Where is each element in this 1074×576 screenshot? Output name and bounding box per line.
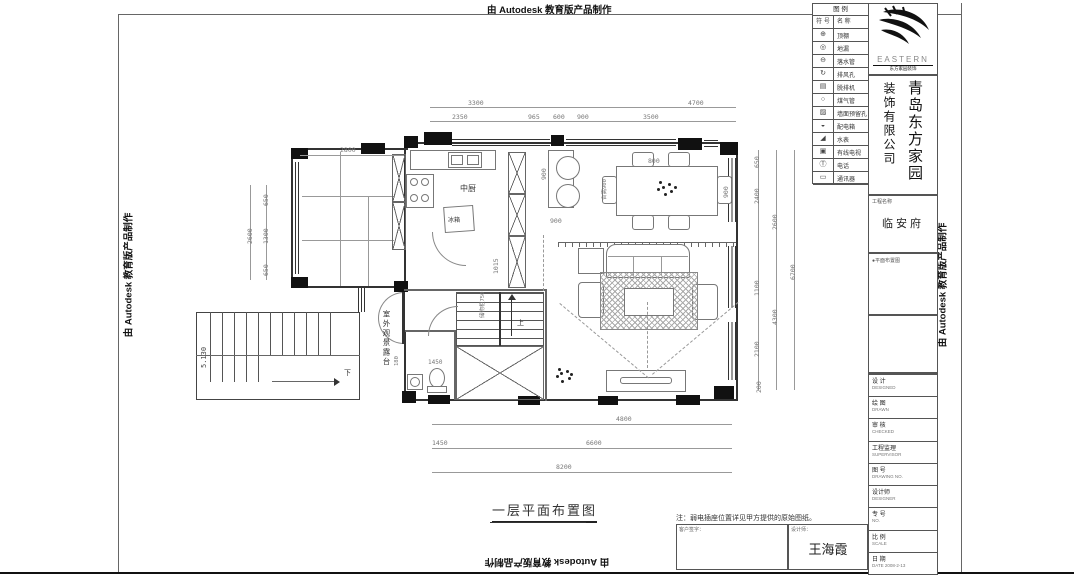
dim-r2400: 2400	[753, 188, 761, 204]
drawing-title-underline	[490, 522, 586, 523]
dim-line	[432, 472, 732, 473]
dim-6700: 6700	[789, 264, 797, 280]
legend-row: ◎地漏	[813, 42, 868, 55]
dim-600: 600	[553, 113, 565, 121]
dining-chair	[668, 152, 690, 167]
titleblock-row-subtext: SUPERVISOR	[872, 452, 934, 457]
tv-centerline	[647, 302, 648, 368]
dim-900v: 900	[722, 186, 730, 198]
legend-row: ↻排风孔	[813, 68, 868, 81]
titleblock-row-subtext: SCALE	[872, 541, 934, 546]
legend-item-name: 有线电视	[834, 148, 868, 157]
column	[720, 142, 738, 155]
burner	[410, 178, 418, 186]
legend-symbol-icon: ◎	[813, 42, 834, 54]
titleblock-row-subtext: NO.	[872, 518, 934, 523]
titleblock-row-subtext: DRAWING NO.	[872, 474, 934, 479]
table-centerpiece	[662, 186, 665, 189]
titleblock-row-subtext: DESIGNED	[872, 385, 934, 390]
plant	[560, 372, 563, 375]
tall-cabinet	[508, 194, 526, 236]
stair-arrowhead	[508, 294, 516, 300]
wall-right	[736, 142, 738, 401]
legend-header: 符 号 名 称	[813, 16, 868, 29]
logo-subtext: 东方家园装饰	[873, 65, 933, 72]
titleblock-row: 工程监理SUPERVISOR	[869, 441, 937, 463]
legend-table: 图 例 符 号 名 称 ⊕顶棚◎地漏⊖落水管↻排风孔▤脱排机○煤气管▨墙面预留孔…	[812, 3, 869, 184]
legend-item-name: 墙面预留孔	[834, 109, 868, 118]
company-name-box: 青岛东方家园 装饰有限公司	[868, 75, 938, 195]
dim-1450b: 1450	[432, 439, 448, 447]
legend-symbol-icon: ⊖	[813, 55, 834, 67]
titleblock-row-label: 专 号	[872, 509, 934, 518]
legend-row: ▨墙面预留孔	[813, 107, 868, 120]
window	[292, 162, 299, 274]
dim-r2100: 2100	[753, 341, 761, 357]
tv	[620, 377, 672, 384]
tatami-line	[302, 196, 394, 197]
legend-item-name: 顶棚	[834, 31, 868, 40]
frame-left	[118, 14, 119, 572]
dim-3500: 3500	[643, 113, 659, 121]
designer-signature-name: 王海霞	[789, 539, 867, 558]
designer-signature-box: 设计师： 王海霞	[788, 524, 868, 570]
titleblock-row: 设计师DESIGNER	[869, 485, 937, 507]
legend-col-symbol: 符 号	[813, 16, 834, 28]
legend-row: Ⓣ电话	[813, 159, 868, 172]
titleblock-row-label: 日 期	[872, 554, 934, 563]
dim-k900b: 900	[550, 217, 562, 225]
window	[358, 288, 365, 312]
door-leaf	[402, 318, 405, 344]
legend-row: ⊖落水管	[813, 55, 868, 68]
dim-r650: 650	[753, 156, 761, 168]
dim-line	[432, 424, 732, 425]
outdoor-stair-flight-upper	[210, 312, 334, 356]
legend-item-name: 落水管	[834, 57, 868, 66]
dim-r200: 200	[755, 381, 763, 393]
wall-stair-right	[545, 289, 547, 401]
titleblock-row-label: 工程监理	[872, 443, 934, 452]
legend-col-name: 名 称	[834, 16, 868, 28]
legend-symbol-icon: ○	[813, 94, 834, 106]
burner	[410, 194, 418, 202]
side-table	[578, 248, 604, 274]
titleblock-row-subtext: DRAWN	[872, 407, 934, 412]
dim-650a: 650	[262, 194, 270, 206]
brand-box: EASTERN 东方家园装饰	[868, 3, 938, 75]
bar-stool	[556, 156, 580, 180]
titleblock-row-label: 设计师	[872, 487, 934, 496]
column	[428, 395, 450, 404]
titleblock-row-label: 比 例	[872, 532, 934, 541]
dim-965: 965	[528, 113, 540, 121]
company-name-right: 青岛东方家园	[904, 80, 925, 182]
outdoor-arrowhead	[334, 378, 340, 386]
legend-symbol-icon: ⊕	[813, 29, 834, 41]
dim-line	[432, 448, 732, 449]
dim-800: 800	[648, 157, 660, 165]
legend-row: ○煤气管	[813, 94, 868, 107]
wall-wing-bottom	[291, 286, 408, 288]
coffee-table	[624, 288, 674, 316]
toilet-bowl	[429, 368, 445, 388]
legend-symbol-icon: ◒	[813, 120, 834, 132]
dim-6600: 6600	[586, 439, 602, 447]
legend-item-name: 排风孔	[834, 70, 868, 79]
dim-line	[776, 150, 777, 390]
toilet-tank	[427, 386, 447, 393]
stair-rail	[499, 292, 501, 346]
dim-180: 180	[394, 356, 400, 366]
level-mark: 5.130	[200, 347, 208, 368]
legend-item-name: 煤气管	[834, 96, 868, 105]
legend-row: ▣有线电视	[813, 146, 868, 159]
titleblock-row-label: 绘 图	[872, 398, 934, 407]
legend-symbol-icon: Ⓣ	[813, 159, 834, 171]
client-signature-box: 客户签字：	[676, 524, 788, 570]
column	[676, 395, 700, 405]
column	[598, 396, 618, 405]
titleblock-row: 专 号NO.	[869, 507, 937, 529]
burner	[421, 178, 429, 186]
dining-table	[616, 166, 718, 216]
door-leaf	[402, 292, 405, 318]
project-box: 工程名称 临安府	[868, 195, 938, 253]
outdoor-stair-flight-lower	[210, 356, 270, 382]
column	[291, 277, 308, 288]
dim-900: 900	[577, 113, 589, 121]
watermark-left: 由 Autodesk 教育版产品制作	[121, 203, 135, 348]
legend-item-name: 通讯器	[834, 174, 868, 183]
titleblock-row-label: 图 号	[872, 465, 934, 474]
tall-cabinet	[508, 152, 526, 194]
hall-dashed-line	[543, 235, 544, 291]
sink-bowl	[467, 155, 479, 165]
dim-2350: 2350	[452, 113, 468, 121]
kitchen-door-arc	[432, 232, 466, 266]
titleblock-row-subtext: CHECKED	[872, 429, 934, 434]
legend-item-name: 地漏	[834, 44, 868, 53]
column	[402, 391, 416, 403]
titleblock-row-subtext: DESIGNER	[872, 496, 934, 501]
tatami-line	[302, 240, 394, 241]
dim-1300: 1300	[262, 228, 270, 244]
titleblock-row: 设 计DESIGNED	[869, 374, 937, 396]
counter-height-label: 台高900	[600, 179, 608, 200]
footer-note: 注：弱电插座位置详见甲方提供的原始图纸。	[676, 513, 816, 523]
dim-8200: 8200	[556, 463, 572, 471]
legend-item-name: 水表	[834, 135, 868, 144]
designer-signature-label: 设计师：	[789, 525, 867, 533]
legend-row: ◢水表	[813, 133, 868, 146]
column	[404, 136, 418, 148]
dim-line	[430, 107, 736, 108]
window	[728, 246, 736, 308]
logo-wordmark: EASTERN	[869, 55, 937, 64]
tall-cabinet	[508, 236, 526, 288]
dim-1015: 1015	[492, 258, 500, 274]
sofa-seat-line	[608, 256, 688, 257]
wall-kitchen-bottom	[404, 289, 545, 291]
dim-4700: 4700	[688, 99, 704, 107]
kitchen-label: 中厨	[460, 183, 476, 194]
understair-storage	[456, 346, 544, 400]
window	[728, 322, 736, 380]
legend-rows: ⊕顶棚◎地漏⊖落水管↻排风孔▤脱排机○煤气管▨墙面预留孔◒配电箱◢水表▣有线电视…	[813, 29, 868, 185]
dim-line	[300, 155, 404, 156]
dim-k900: 900	[540, 168, 548, 180]
legend-row: ▭通讯器	[813, 172, 868, 185]
dim-r1100: 1100	[753, 280, 761, 296]
outdoor-down-label: 下	[344, 368, 351, 378]
titleblock-row-subtext: DATE 2008-2-13	[872, 563, 934, 568]
bath-door-arc	[428, 306, 458, 336]
legend-row: ◒配电箱	[813, 120, 868, 133]
wardrobe	[392, 202, 406, 250]
column	[424, 132, 452, 145]
legend-item-name: 脱排机	[834, 83, 868, 92]
dim-650b: 650	[262, 264, 270, 276]
legend-row: ▤脱排机	[813, 81, 868, 94]
column	[291, 148, 308, 159]
dim-3300: 3300	[468, 99, 484, 107]
titleblock-row: 图 号DRAWING NO.	[869, 463, 937, 485]
dim-4800: 4800	[616, 415, 632, 423]
dim-line	[430, 121, 736, 122]
dim-r4300: 4300	[771, 309, 779, 325]
burner	[421, 194, 429, 202]
terrace-label: 室外观景露台	[381, 310, 392, 394]
column	[714, 386, 734, 399]
project-name: 临安府	[869, 215, 937, 231]
dining-chair	[632, 215, 654, 230]
legend-symbol-icon: ▤	[813, 81, 834, 93]
sink-bowl	[451, 155, 463, 165]
column	[678, 138, 702, 150]
client-signature-label: 客户签字：	[677, 525, 787, 533]
spec-box: ●平面布置图	[868, 253, 938, 315]
tatami-line	[368, 196, 369, 286]
drawing-title: 一层平面布置图	[492, 500, 597, 523]
eastern-logo-icon	[869, 4, 937, 50]
column	[551, 135, 564, 146]
legend-item-name: 配电箱	[834, 122, 868, 131]
watermark-bottom: 由 Autodesk 教育版产品制作	[452, 556, 642, 570]
column	[361, 143, 385, 154]
spec-note: ●平面布置图	[869, 254, 937, 264]
titleblock-row-label: 设 计	[872, 376, 934, 385]
dim-1450bath: 1450	[428, 359, 442, 366]
legend-symbol-icon: ◢	[813, 133, 834, 145]
dim-2800: 2800	[340, 146, 356, 154]
outdoor-stair-arrow	[272, 381, 334, 382]
titleblock-row: 日 期DATE 2008-2-13	[869, 552, 937, 574]
frame-right	[961, 3, 962, 572]
bar-stool	[556, 184, 580, 208]
titleblock-row: 审 核CHECKED	[869, 418, 937, 440]
titleblock-row: 绘 图DRAWN	[869, 396, 937, 418]
cad-sheet: 由 Autodesk 教育版产品制作 由 Autodesk 教育版产品制作 由 …	[0, 0, 1074, 576]
tatami-line	[340, 152, 341, 286]
titleblock-rows: 设 计DESIGNED绘 图DRAWN审 核CHECKED工程监理SUPERVI…	[868, 373, 938, 575]
company-name-left: 装饰有限公司	[881, 82, 898, 166]
titleblock-row: 比 例SCALE	[869, 530, 937, 552]
titleblock-row-label: 审 核	[872, 420, 934, 429]
outdoor-stair-divider	[196, 355, 360, 356]
stair-storage-label: 储物柜750	[478, 292, 486, 318]
legend-symbol-icon: ▭	[813, 172, 834, 184]
legend-row: ⊕顶棚	[813, 29, 868, 42]
window	[566, 139, 676, 146]
dim-2600l: 2600	[246, 228, 254, 244]
project-label: 工程名称	[869, 196, 937, 205]
washer-drum	[410, 377, 420, 387]
empty-box	[868, 315, 938, 373]
legend-symbol-icon: ↻	[813, 68, 834, 80]
window	[704, 140, 718, 147]
legend-item-name: 电话	[834, 161, 868, 170]
wardrobe	[392, 154, 406, 202]
dim-r2600: 2600	[771, 214, 779, 230]
stair-arrow	[511, 298, 512, 336]
legend-symbol-icon: ▨	[813, 107, 834, 119]
window	[452, 139, 550, 146]
legend-title: 图 例	[813, 4, 868, 16]
dining-chair	[668, 215, 690, 230]
stair-up-label: 上	[517, 318, 524, 328]
legend-symbol-icon: ▣	[813, 146, 834, 158]
fridge-label: 冰箱	[448, 215, 460, 224]
